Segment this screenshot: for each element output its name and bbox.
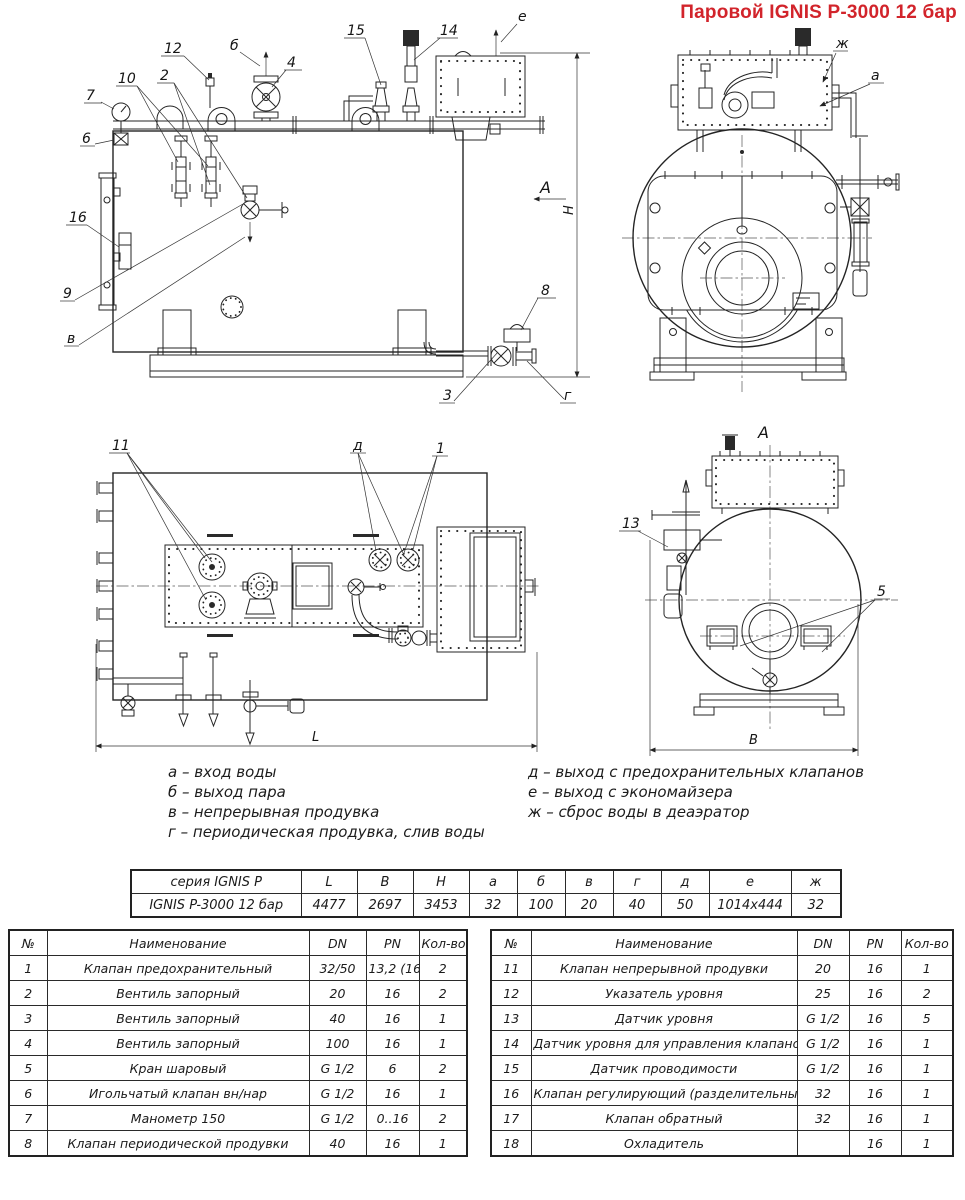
table-cell: Датчик проводимости — [531, 1056, 797, 1081]
dimensions-table-body: IGNIS P-3000 12 бар447726973453321002040… — [131, 894, 841, 918]
callout-9: 9 — [63, 286, 72, 302]
table-cell: Указатель уровня — [531, 981, 797, 1006]
callout-2: 2 — [160, 68, 169, 84]
table-cell: 16 — [491, 1081, 531, 1106]
callout-13: 13 — [622, 516, 640, 532]
table-cell: 1 — [9, 956, 47, 981]
table-row: 12Указатель уровня25162 — [491, 981, 953, 1006]
callout-zh: ж — [835, 36, 849, 52]
table-cell: 1 — [419, 1031, 467, 1056]
table-cell: Датчик уровня для управления клапаном — [531, 1031, 797, 1056]
dimensions-table-head: серия IGNIS PLBHабвгдеж — [131, 870, 841, 894]
table-cell: 100 — [517, 894, 565, 918]
table-cell: 16 — [849, 1006, 901, 1031]
drawing-sheet: Паровой IGNIS P-3000 12 бар — [0, 0, 965, 1200]
table-cell: 2 — [901, 981, 953, 1006]
table-cell: IGNIS P-3000 12 бар — [131, 894, 301, 918]
callout-b: б — [230, 38, 239, 54]
table-cell: 12 — [491, 981, 531, 1006]
column-header: PN — [366, 930, 419, 956]
table-cell: 2697 — [357, 894, 413, 918]
table-cell: 3453 — [413, 894, 469, 918]
callout-1: 1 — [436, 441, 445, 457]
legend-item: б – выход пара — [168, 782, 485, 802]
table-cell: 50 — [661, 894, 709, 918]
table-cell: 20 — [309, 981, 366, 1006]
callout-5: 5 — [877, 584, 886, 600]
table-cell: 16 — [366, 981, 419, 1006]
column-header: е — [709, 870, 791, 894]
column-header: Наименование — [531, 930, 797, 956]
callout-7: 7 — [86, 88, 95, 104]
table-row: 16Клапан регулирующий (разделительный)32… — [491, 1081, 953, 1106]
view-direction-label: А — [539, 178, 551, 197]
table-cell: Вентиль запорный — [47, 1031, 309, 1056]
table-cell: 18 — [491, 1131, 531, 1157]
table-cell: Вентиль запорный — [47, 1006, 309, 1031]
table-cell: 40 — [613, 894, 661, 918]
table-row: 17Клапан обратный32161 — [491, 1106, 953, 1131]
table-row: 18Охладитель161 — [491, 1131, 953, 1157]
dimensions-table: серия IGNIS PLBHабвгдеж IGNIS P-3000 12 … — [130, 869, 842, 918]
table-cell: G 1/2 — [309, 1081, 366, 1106]
table-cell: Клапан обратный — [531, 1106, 797, 1131]
table-cell: 4 — [9, 1031, 47, 1056]
table-cell: 16 — [849, 1056, 901, 1081]
table-cell: G 1/2 — [797, 1031, 849, 1056]
table-row: 14Датчик уровня для управления клапаномG… — [491, 1031, 953, 1056]
table-cell: 16 — [849, 1106, 901, 1131]
parts-table-right-body: 11Клапан непрерывной продувки2016112Указ… — [491, 956, 953, 1157]
table-row: IGNIS P-3000 12 бар447726973453321002040… — [131, 894, 841, 918]
table-cell: 100 — [309, 1031, 366, 1056]
column-header: ж — [791, 870, 841, 894]
table-cell: 1014x444 — [709, 894, 791, 918]
table-cell: 8 — [9, 1131, 47, 1157]
legend-item: е – выход с экономайзера — [528, 782, 864, 802]
table-cell: 20 — [797, 956, 849, 981]
callout-6: 6 — [82, 131, 91, 147]
callout-8: 8 — [541, 283, 550, 299]
table-cell: 6 — [9, 1081, 47, 1106]
table-cell: G 1/2 — [797, 1006, 849, 1031]
table-cell: 2 — [419, 956, 467, 981]
table-row: 6Игольчатый клапан вн/нарG 1/2161 — [9, 1081, 467, 1106]
dim-h-label: H — [562, 205, 577, 215]
table-cell: 32 — [797, 1106, 849, 1131]
legend-right: д – выход с предохранительных клапанов е… — [528, 762, 864, 822]
table-cell: 2 — [419, 981, 467, 1006]
table-row: 7Манометр 150G 1/20..162 — [9, 1106, 467, 1131]
table-row: 1Клапан предохранительный32/5013,2 (16)2 — [9, 956, 467, 981]
column-header: PN — [849, 930, 901, 956]
column-header: г — [613, 870, 661, 894]
table-row: 8Клапан периодической продувки40161 — [9, 1131, 467, 1157]
callout-11: 11 — [112, 438, 130, 454]
table-cell: 16 — [849, 1081, 901, 1106]
callout-g: г — [564, 388, 572, 404]
table-row: 2Вентиль запорный20162 — [9, 981, 467, 1006]
callout-16: 16 — [69, 210, 87, 226]
parts-table-left-body: 1Клапан предохранительный32/5013,2 (16)2… — [9, 956, 467, 1157]
table-cell: 1 — [901, 956, 953, 981]
table-cell: 7 — [9, 1106, 47, 1131]
callout-a: а — [871, 68, 880, 84]
column-header: а — [469, 870, 517, 894]
table-cell: Датчик уровня — [531, 1006, 797, 1031]
table-cell: 32/50 — [309, 956, 366, 981]
column-header: Кол-во — [419, 930, 467, 956]
table-cell: 32 — [797, 1081, 849, 1106]
table-cell: 1 — [419, 1081, 467, 1106]
view-a-label: А — [757, 423, 769, 442]
callout-10: 10 — [118, 71, 136, 87]
callout-d: д — [352, 438, 363, 454]
table-cell: 1 — [901, 1131, 953, 1157]
callout-4: 4 — [287, 55, 296, 71]
table-cell: 25 — [797, 981, 849, 1006]
callout-12: 12 — [164, 41, 182, 57]
table-cell: G 1/2 — [309, 1106, 366, 1131]
callout-e: е — [518, 9, 527, 25]
table-cell: 32 — [791, 894, 841, 918]
table-header-row: №НаименованиеDNPNКол-во — [9, 930, 467, 956]
table-cell: Клапан непрерывной продувки — [531, 956, 797, 981]
table-row: 11Клапан непрерывной продувки20161 — [491, 956, 953, 981]
table-cell: 13 — [491, 1006, 531, 1031]
table-cell: 1 — [419, 1006, 467, 1031]
column-header: № — [491, 930, 531, 956]
callout-15: 15 — [347, 23, 365, 39]
table-row: 15Датчик проводимостиG 1/2161 — [491, 1056, 953, 1081]
table-row: 5Кран шаровыйG 1/262 — [9, 1056, 467, 1081]
legend-item: в – непрерывная продувка — [168, 802, 485, 822]
column-header: DN — [309, 930, 366, 956]
table-row: 3Вентиль запорный40161 — [9, 1006, 467, 1031]
table-cell: 16 — [849, 1131, 901, 1157]
table-cell: 1 — [901, 1106, 953, 1131]
table-cell: Клапан предохранительный — [47, 956, 309, 981]
table-cell: 11 — [491, 956, 531, 981]
table-cell: Вентиль запорный — [47, 981, 309, 1006]
table-cell: G 1/2 — [309, 1056, 366, 1081]
column-header: L — [301, 870, 357, 894]
rear-view: А — [619, 423, 898, 756]
table-cell: 1 — [901, 1081, 953, 1106]
table-cell: 1 — [901, 1031, 953, 1056]
column-header: Кол-во — [901, 930, 953, 956]
table-cell: Охладитель — [531, 1131, 797, 1157]
table-row: 13Датчик уровняG 1/2165 — [491, 1006, 953, 1031]
callout-14: 14 — [440, 23, 458, 39]
column-header: д — [661, 870, 709, 894]
dim-l-label: L — [312, 730, 319, 745]
table-cell: 15 — [491, 1056, 531, 1081]
column-header: Наименование — [47, 930, 309, 956]
callout-v: в — [67, 331, 75, 347]
table-cell: 4477 — [301, 894, 357, 918]
table-cell: 32 — [469, 894, 517, 918]
table-cell: 14 — [491, 1031, 531, 1056]
plan-view: 11 д 1 L — [96, 438, 540, 752]
table-cell: 40 — [309, 1006, 366, 1031]
table-cell: 0..16 — [366, 1106, 419, 1131]
table-cell: Клапан регулирующий (разделительный) — [531, 1081, 797, 1106]
table-cell: 1 — [419, 1131, 467, 1157]
table-cell: 16 — [366, 1081, 419, 1106]
table-cell: Кран шаровый — [47, 1056, 309, 1081]
column-header: H — [413, 870, 469, 894]
table-cell: 20 — [565, 894, 613, 918]
table-cell: 13,2 (16) — [366, 956, 419, 981]
table-header-row: серия IGNIS PLBHабвгдеж — [131, 870, 841, 894]
table-cell: 16 — [849, 981, 901, 1006]
table-cell — [797, 1131, 849, 1157]
callout-3: 3 — [443, 388, 452, 404]
table-cell: 2 — [9, 981, 47, 1006]
table-cell: 2 — [419, 1106, 467, 1131]
table-cell: Игольчатый клапан вн/нар — [47, 1081, 309, 1106]
column-header: № — [9, 930, 47, 956]
table-cell: 6 — [366, 1056, 419, 1081]
dim-b-label: В — [749, 733, 758, 748]
column-header: б — [517, 870, 565, 894]
table-cell: G 1/2 — [797, 1056, 849, 1081]
table-cell: 40 — [309, 1131, 366, 1157]
parts-table-right-head: №НаименованиеDNPNКол-во — [491, 930, 953, 956]
table-cell: 17 — [491, 1106, 531, 1131]
table-cell: Манометр 150 — [47, 1106, 309, 1131]
parts-table-right: №НаименованиеDNPNКол-во 11Клапан непреры… — [490, 929, 954, 1157]
parts-table-left-head: №НаименованиеDNPNКол-во — [9, 930, 467, 956]
column-header: B — [357, 870, 413, 894]
table-cell: 5 — [901, 1006, 953, 1031]
legend-item: д – выход с предохранительных клапанов — [528, 762, 864, 782]
table-cell: 3 — [9, 1006, 47, 1031]
parts-table-left: №НаименованиеDNPNКол-во 1Клапан предохра… — [8, 929, 468, 1157]
legend-item: г – периодическая продувка, слив воды — [168, 822, 485, 842]
table-cell: 16 — [366, 1006, 419, 1031]
table-cell: 16 — [366, 1131, 419, 1157]
table-cell: 16 — [849, 1031, 901, 1056]
table-cell: 16 — [849, 956, 901, 981]
column-header: DN — [797, 930, 849, 956]
column-header: серия IGNIS P — [131, 870, 301, 894]
front-view: ж а — [622, 28, 899, 392]
table-cell: 2 — [419, 1056, 467, 1081]
boiler-drawing: 7 6 10 2 12 б 4 15 14 е 16 9 в 8 3 г А H — [0, 0, 965, 770]
column-header: в — [565, 870, 613, 894]
table-row: 4Вентиль запорный100161 — [9, 1031, 467, 1056]
table-cell: 16 — [366, 1031, 419, 1056]
side-view: 7 6 10 2 12 б 4 15 14 е 16 9 в 8 3 г А H — [60, 9, 590, 404]
legend-left: а – вход воды б – выход пара в – непреры… — [168, 762, 485, 842]
table-cell: 5 — [9, 1056, 47, 1081]
table-header-row: №НаименованиеDNPNКол-во — [491, 930, 953, 956]
legend-item: а – вход воды — [168, 762, 485, 782]
table-cell: Клапан периодической продувки — [47, 1131, 309, 1157]
table-cell: 1 — [901, 1056, 953, 1081]
legend-item: ж – сброс воды в деаэратор — [528, 802, 864, 822]
